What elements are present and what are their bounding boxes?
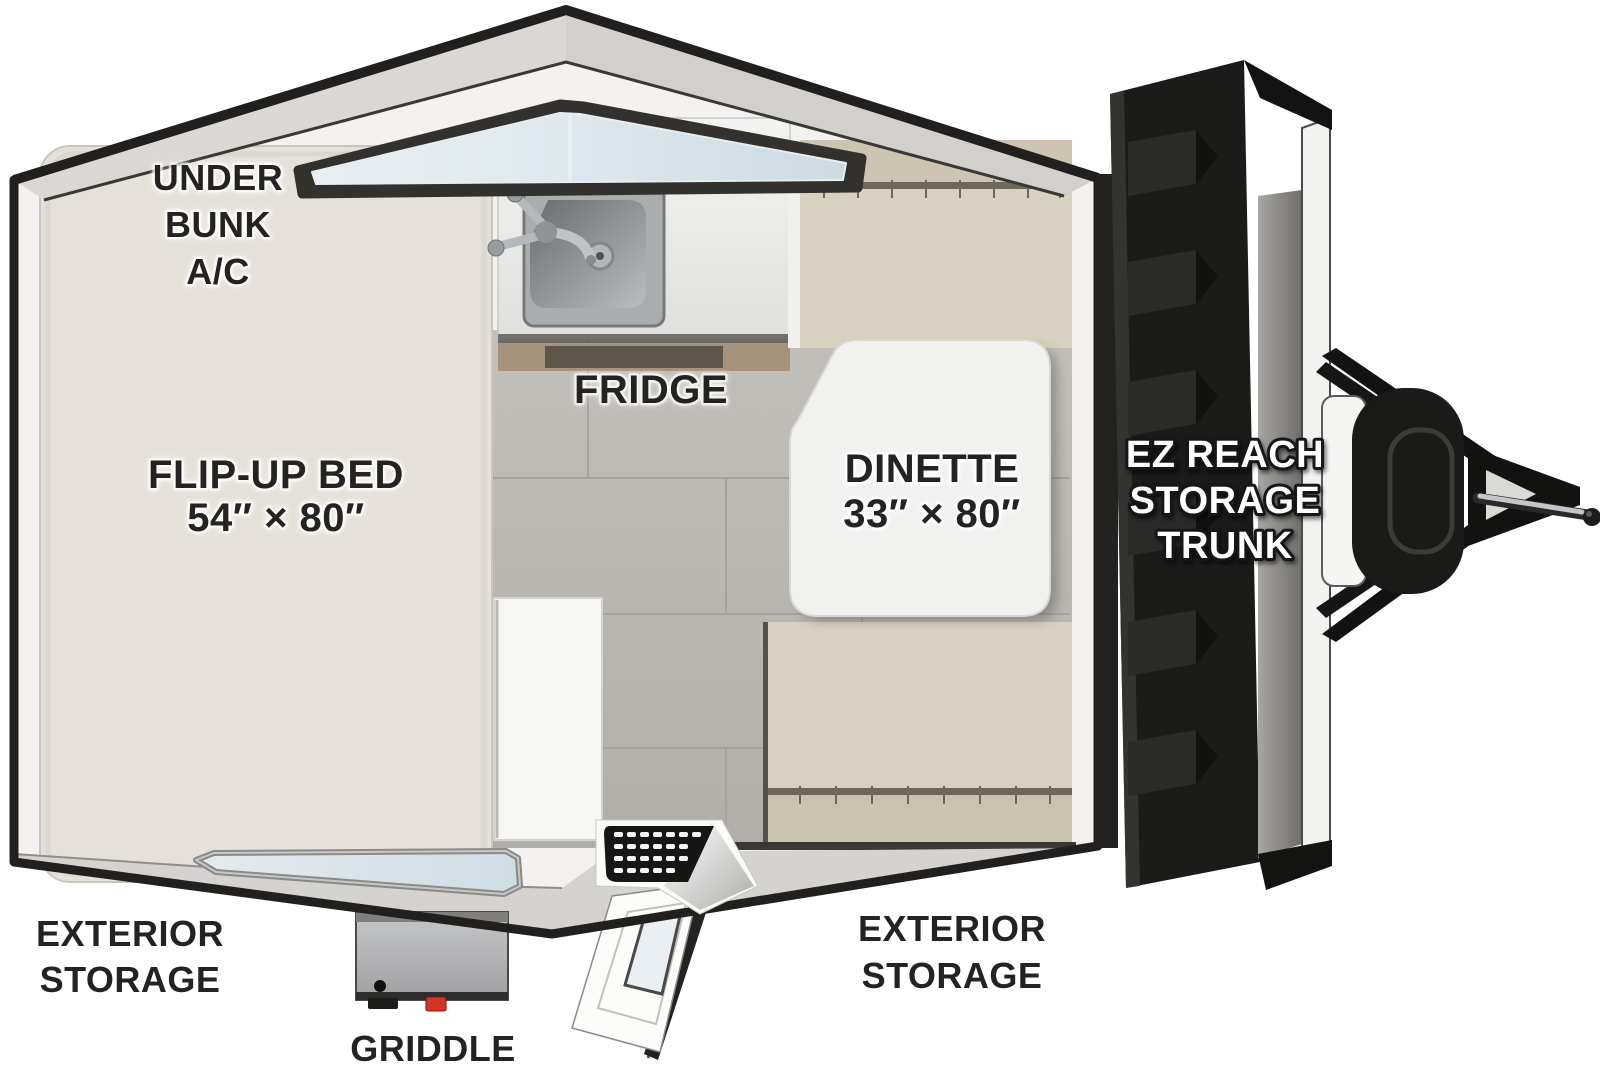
label-dinette: DINETTE (845, 447, 1020, 491)
label-flip-up-bed: FLIP-UP BED (148, 453, 404, 497)
label-under-bunk-line2: BUNK (165, 204, 271, 245)
dinette-bench-bottom (763, 622, 1072, 843)
wardrobe-cabinet (494, 598, 602, 840)
label-exterior-storage-right-line2: STORAGE (862, 955, 1043, 996)
label-ez-reach-line3: TRUNK (1157, 525, 1293, 567)
floorplan-diagram: UNDER BUNK A/C FLIP-UP BED 54″ × 80″ FRI… (0, 0, 1600, 1065)
label-dinette-size: 33″ × 80″ (843, 492, 1020, 536)
counter-shadow (498, 334, 790, 343)
label-under-bunk-line3: A/C (186, 251, 250, 292)
griddle-valve (426, 997, 446, 1011)
label-fridge: FRIDGE (574, 368, 728, 412)
label-ez-reach-line1: EZ REACH (1126, 434, 1324, 476)
hitch-coupler (1468, 446, 1600, 546)
label-under-bunk-line1: UNDER (153, 157, 284, 198)
fridge-vent (498, 343, 790, 371)
label-exterior-storage-left-line1: EXTERIOR (36, 913, 224, 954)
propane-tank (1352, 388, 1464, 594)
label-griddle: GRIDDLE (350, 1028, 516, 1065)
floorplan-page: UNDER BUNK A/C FLIP-UP BED 54″ × 80″ FRI… (0, 0, 1600, 1065)
trunk-interior (1258, 190, 1302, 858)
label-exterior-storage-right-line1: EXTERIOR (858, 908, 1046, 949)
label-exterior-storage-left-line2: STORAGE (40, 959, 221, 1000)
griddle-foot (368, 998, 398, 1009)
label-ez-reach-line2: STORAGE (1130, 480, 1321, 522)
bench-bottom-edge (763, 622, 768, 843)
griddle-knob (374, 980, 386, 992)
label-flip-up-bed-size: 54″ × 80″ (187, 496, 364, 540)
trunk-top-cap (1244, 60, 1332, 130)
